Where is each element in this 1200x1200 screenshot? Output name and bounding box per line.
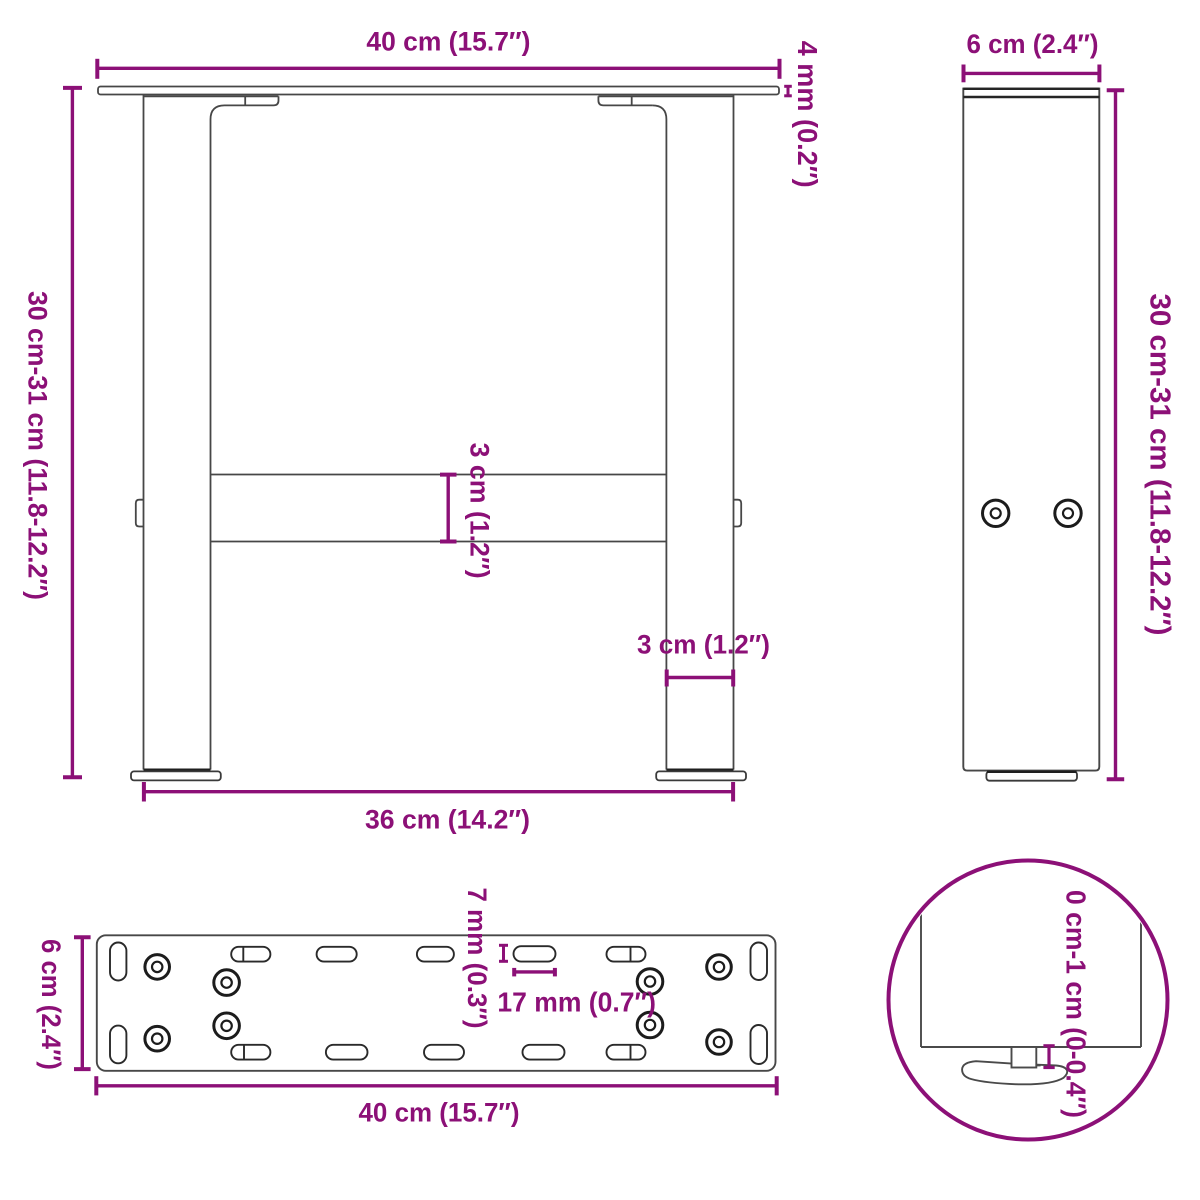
svg-text:40 cm (15.7″): 40 cm (15.7″) [359,1097,520,1127]
svg-text:6 cm (2.4″): 6 cm (2.4″) [36,939,66,1070]
svg-text:3 cm (1.2″): 3 cm (1.2″) [637,629,770,659]
svg-text:30 cm-31 cm (11.8-12.2″): 30 cm-31 cm (11.8-12.2″) [23,291,53,600]
svg-text:4 mm (0.2″): 4 mm (0.2″) [792,41,823,188]
svg-text:17 mm (0.7″): 17 mm (0.7″) [497,986,656,1017]
svg-text:30 cm-31 cm (11.8-12.2″): 30 cm-31 cm (11.8-12.2″) [1143,294,1175,636]
svg-text:6 cm (2.4″): 6 cm (2.4″) [967,29,1099,59]
svg-text:7 mm (0.3″): 7 mm (0.3″) [462,888,492,1029]
svg-text:0 cm-1 cm (0-0.4″): 0 cm-1 cm (0-0.4″) [1061,890,1092,1118]
svg-text:36 cm (14.2″): 36 cm (14.2″) [365,804,530,834]
svg-text:3 cm (1.2″): 3 cm (1.2″) [465,443,495,579]
svg-text:40 cm (15.7″): 40 cm (15.7″) [366,26,530,56]
